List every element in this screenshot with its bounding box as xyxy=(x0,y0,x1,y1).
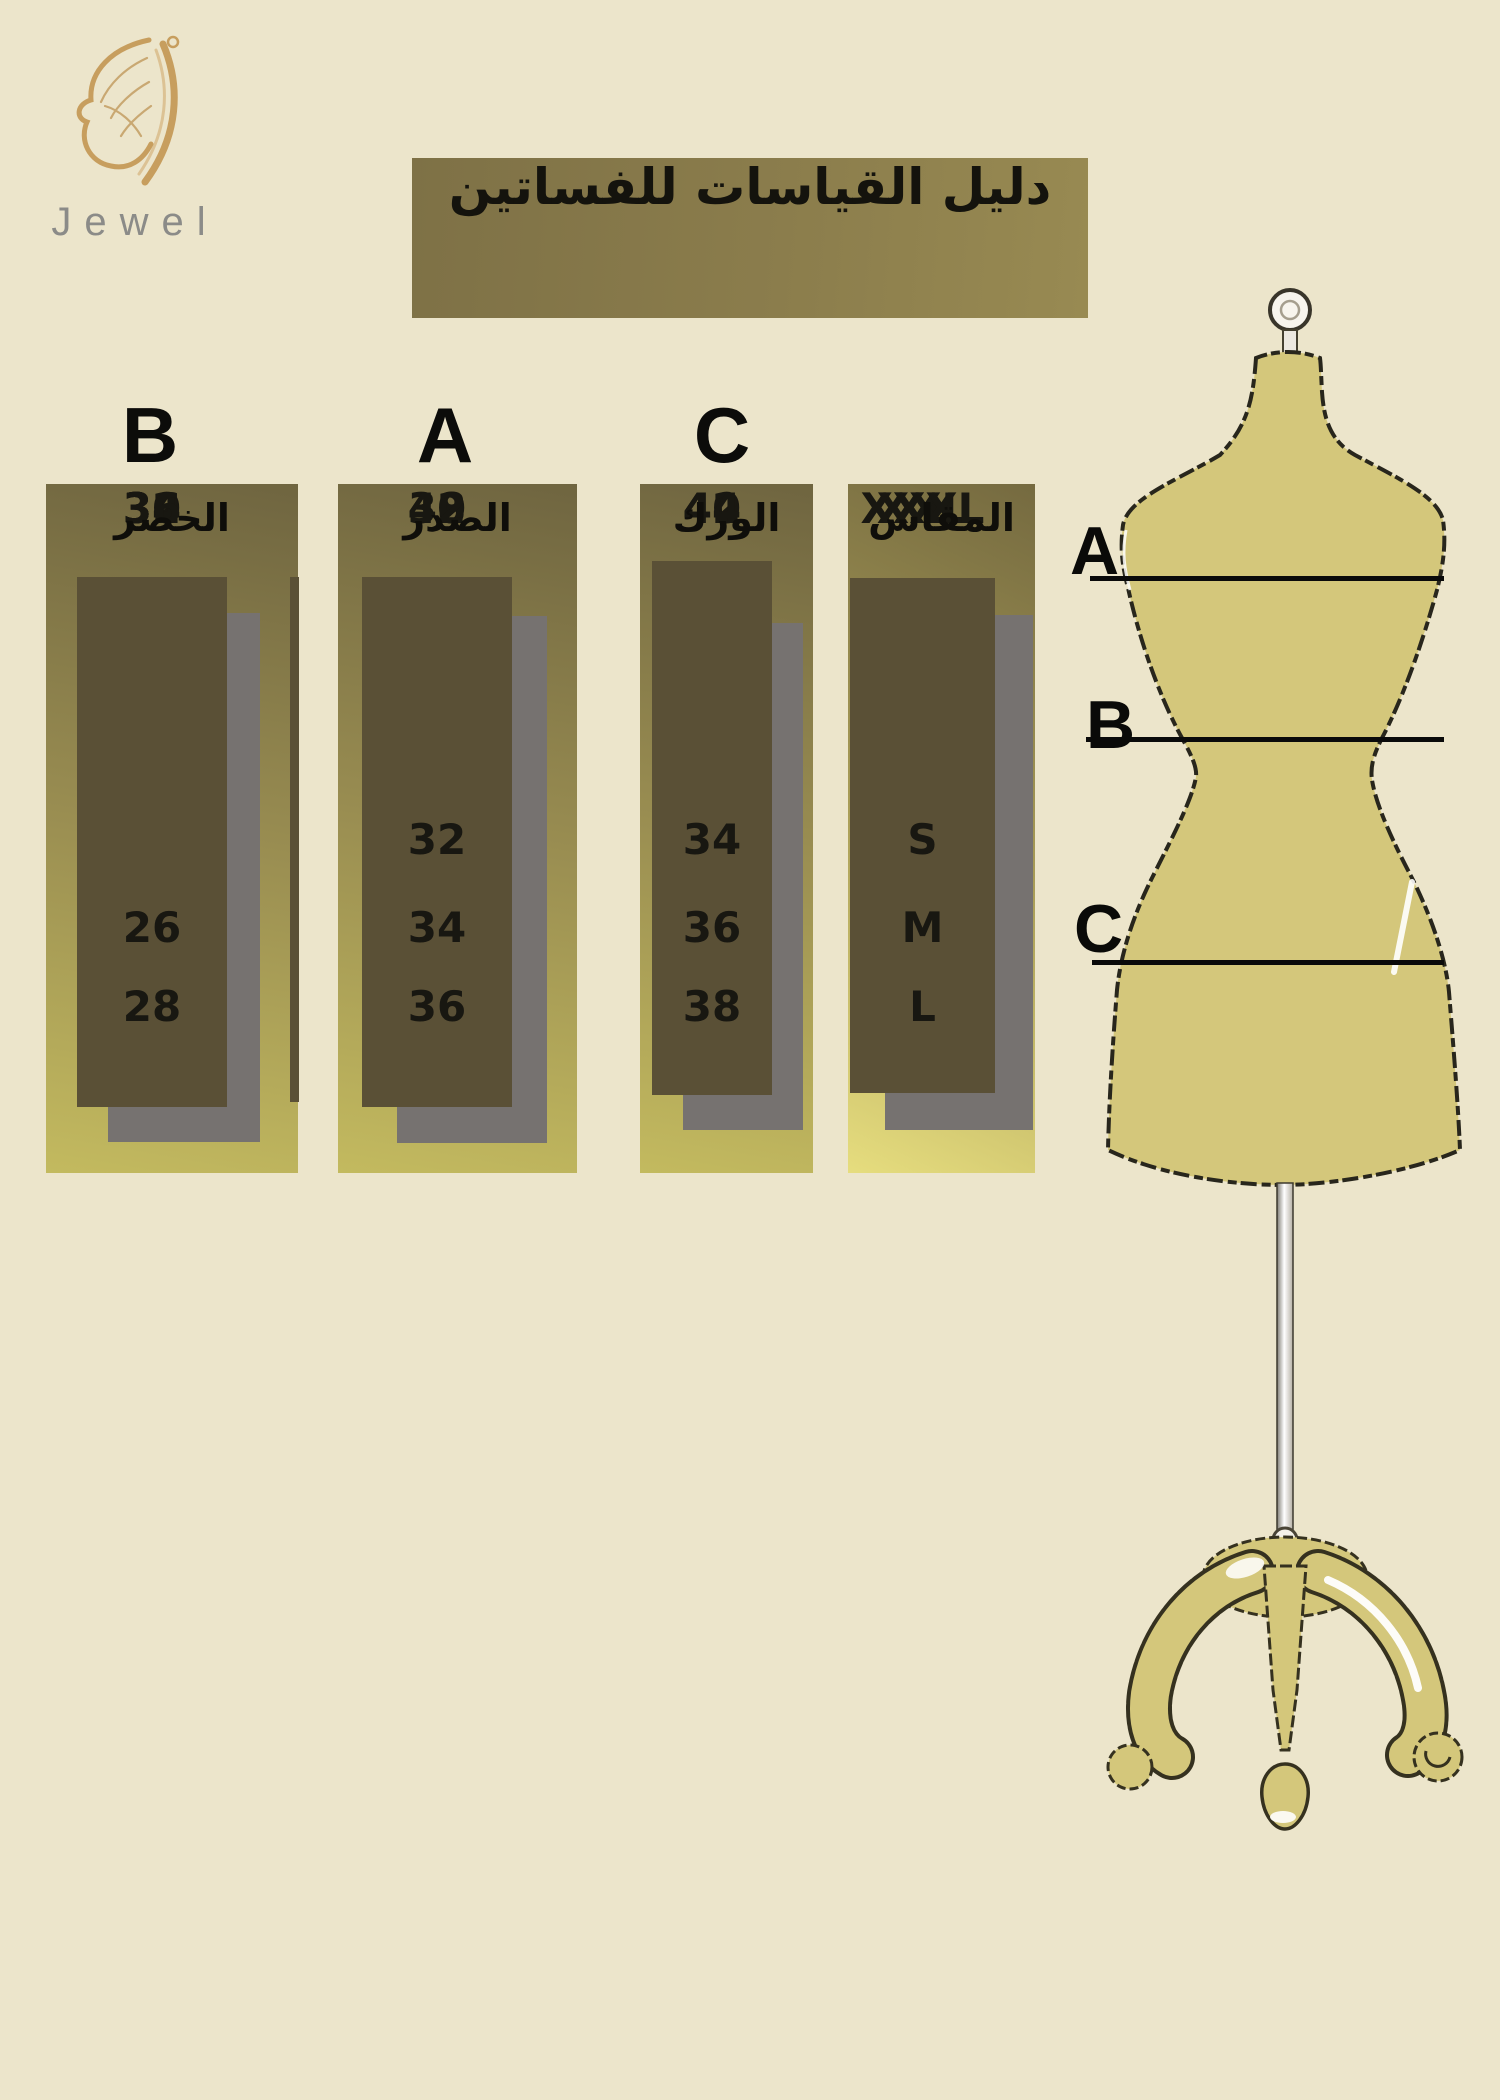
bust-value: 34 xyxy=(362,903,512,955)
figure-label-b: B xyxy=(1086,686,1166,756)
title-banner: دليل القياسات للفساتين xyxy=(412,158,1088,318)
butterfly-wing-icon xyxy=(45,14,195,204)
column-letter-c: C xyxy=(677,390,767,470)
dress-form-illustration xyxy=(1060,270,1500,1850)
bust-value: 32 xyxy=(362,815,512,867)
brand-wordmark: Jewel xyxy=(40,200,230,248)
hip-measure-line xyxy=(1092,960,1444,965)
finial-knob-icon xyxy=(1270,290,1310,330)
column-letter-b: B xyxy=(105,390,195,470)
bust-value: 36 xyxy=(362,982,512,1034)
hip-value: 36 xyxy=(652,903,772,955)
column-header-size: المقاس xyxy=(848,496,1035,540)
size-value: S xyxy=(850,815,995,867)
stand-pole xyxy=(1277,1183,1293,1545)
column-header-waist: الخصر xyxy=(46,496,298,540)
column-letter-a: A xyxy=(400,390,490,470)
column-bust: الصدر 32 34 36 38 40 42 xyxy=(338,484,577,1173)
waist-value: 26 xyxy=(77,903,227,955)
column-header-hip: الورك xyxy=(640,496,813,540)
torso-shape xyxy=(1108,352,1460,1185)
waist-value: 28 xyxy=(77,982,227,1034)
size-value: M xyxy=(850,903,995,955)
tripod-base xyxy=(1108,1537,1462,1829)
figure-label-c: C xyxy=(1074,890,1154,960)
size-guide-poster: Jewel دليل القياسات للفساتين B A C الخصر… xyxy=(0,0,1500,2100)
column-edge-strip xyxy=(290,577,299,1102)
column-size: المقاس S M L XL XXL XXXL xyxy=(848,484,1035,1173)
column-waist: الخصر 26 28 30 32 34 36 xyxy=(46,484,298,1173)
page-title: دليل القياسات للفساتين xyxy=(412,158,1088,318)
hip-value: 34 xyxy=(652,815,772,867)
column-hip: الورك 34 36 38 40 42 44 xyxy=(640,484,813,1173)
size-value: L xyxy=(850,982,995,1034)
column-header-bust: الصدر xyxy=(338,496,577,540)
figure-label-a: A xyxy=(1070,512,1150,582)
hip-value: 38 xyxy=(652,982,772,1034)
